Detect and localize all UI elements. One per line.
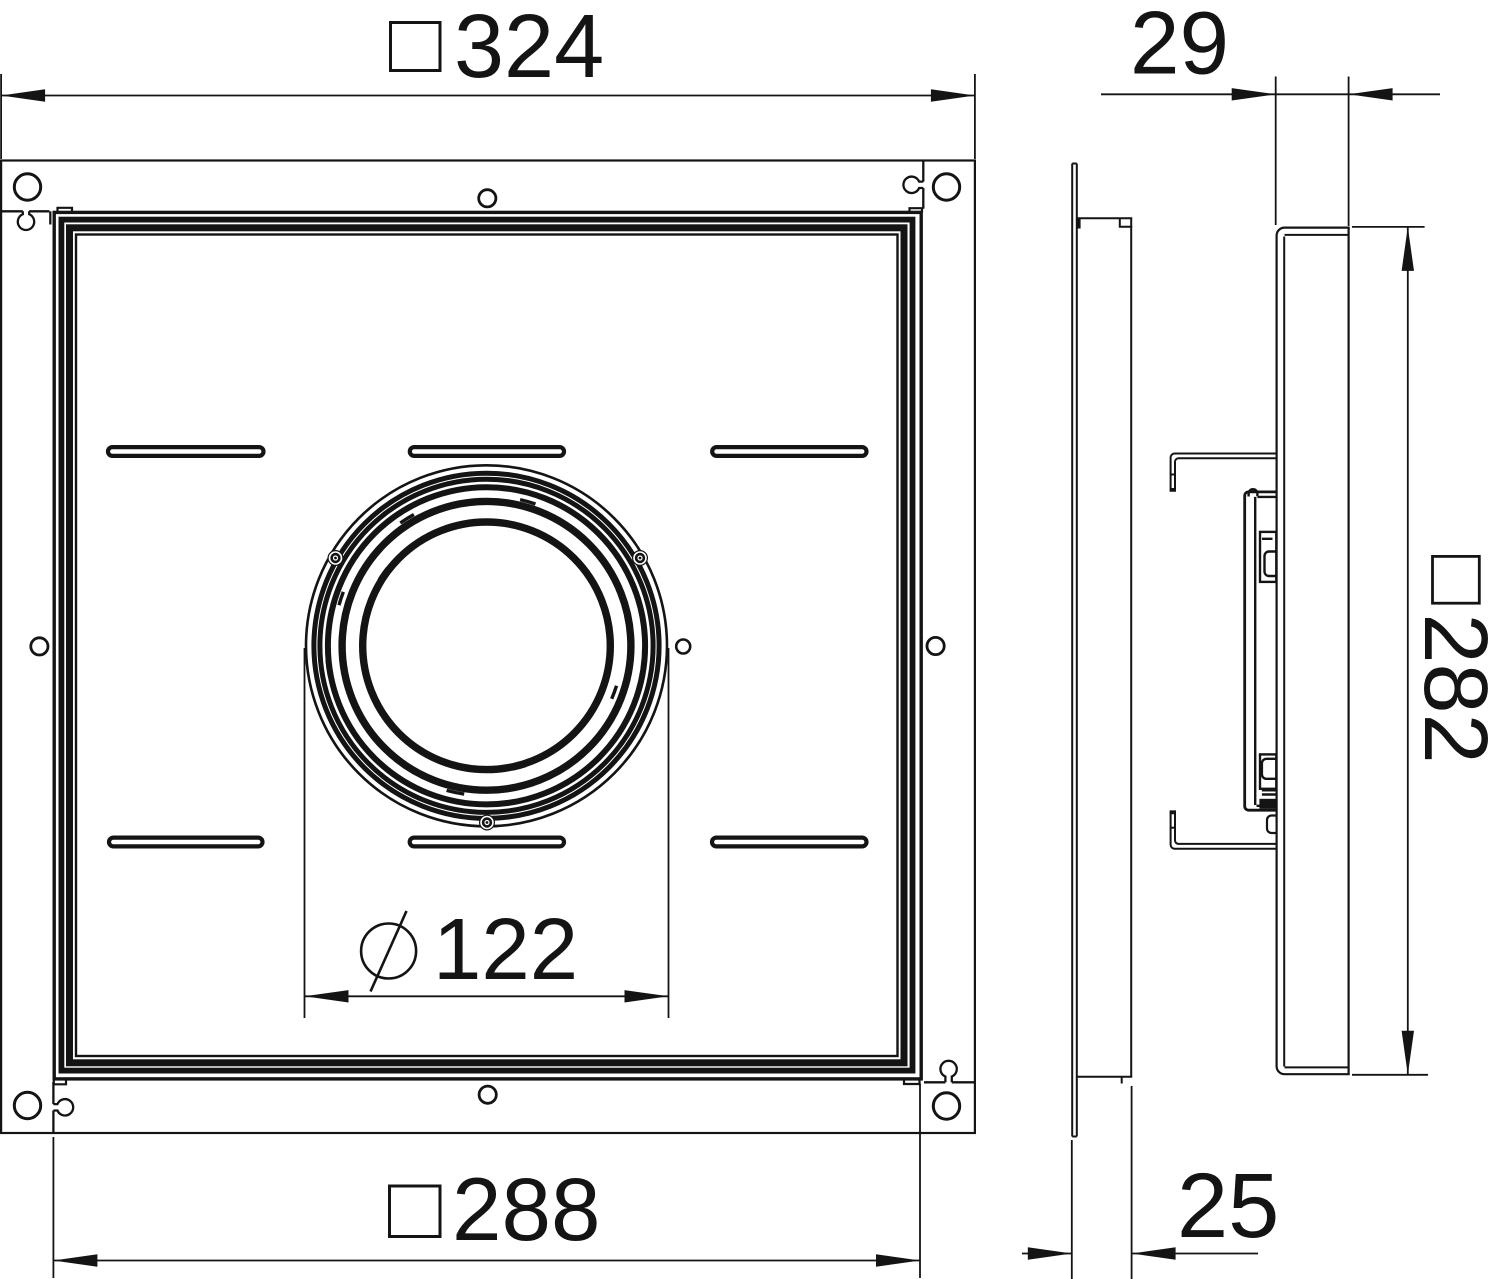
svg-text:122: 122 <box>433 901 578 998</box>
svg-text:324: 324 <box>454 0 604 97</box>
svg-text:288: 288 <box>452 1159 601 1259</box>
svg-text:29: 29 <box>1130 0 1229 93</box>
svg-text:282: 282 <box>1405 614 1500 764</box>
svg-text:25: 25 <box>1177 1155 1279 1257</box>
